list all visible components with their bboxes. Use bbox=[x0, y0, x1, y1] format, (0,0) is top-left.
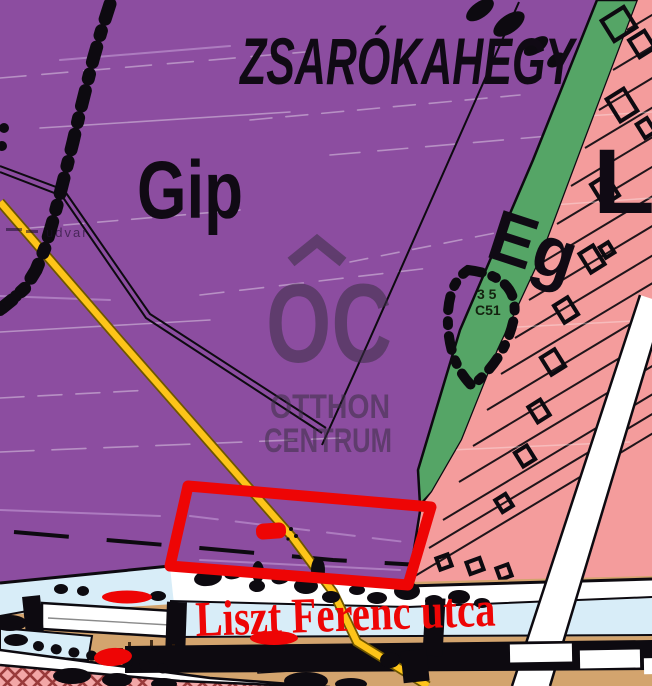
parcel-note-line1: 3 5 bbox=[477, 286, 497, 302]
watermark-line1: OTTHON bbox=[270, 388, 390, 426]
watermark: OC OTTHON CENTRUM bbox=[264, 241, 392, 460]
street-name-label: Liszt Ferenc utca bbox=[194, 581, 496, 647]
watermark-line2: CENTRUM bbox=[264, 422, 392, 460]
hill-name-label: ZSARÓKAHEGY bbox=[239, 24, 578, 98]
zone-label-gip: Gip bbox=[137, 145, 243, 236]
faint-udvar-label: udvar bbox=[46, 225, 89, 240]
zoning-map[interactable]: ZSARÓKAHEGY Gip Eg Lk 3 5 C51 udvar Lisz… bbox=[0, 0, 652, 686]
watermark-monogram: OC bbox=[266, 261, 392, 386]
parcel-note-line2: C51 bbox=[475, 302, 501, 318]
zone-label-lk: Lk bbox=[593, 131, 652, 233]
